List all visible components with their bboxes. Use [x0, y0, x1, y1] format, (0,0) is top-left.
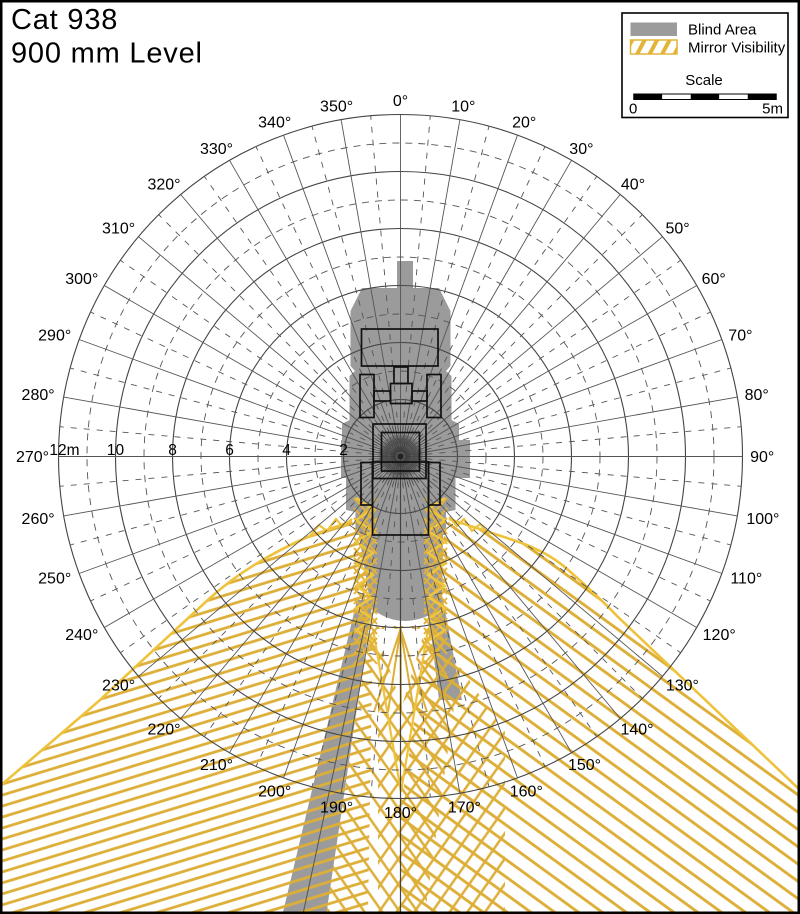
svg-text:60°: 60°	[702, 271, 726, 288]
svg-text:20°: 20°	[512, 115, 536, 132]
svg-text:8: 8	[168, 442, 177, 459]
svg-text:210°: 210°	[200, 757, 233, 774]
svg-text:900 mm Level: 900 mm Level	[11, 38, 203, 70]
svg-text:Scale: Scale	[685, 72, 723, 89]
svg-text:180°: 180°	[384, 805, 417, 822]
svg-text:10°: 10°	[451, 99, 475, 116]
svg-text:250°: 250°	[38, 571, 71, 588]
svg-text:150°: 150°	[568, 757, 601, 774]
svg-text:230°: 230°	[102, 678, 135, 695]
svg-text:260°: 260°	[22, 511, 55, 528]
svg-text:290°: 290°	[38, 327, 71, 344]
svg-text:220°: 220°	[147, 722, 180, 739]
svg-text:90°: 90°	[750, 449, 774, 466]
svg-text:100°: 100°	[746, 511, 779, 528]
svg-text:240°: 240°	[65, 627, 98, 644]
svg-text:Mirror Visibility: Mirror Visibility	[688, 40, 786, 57]
svg-text:40°: 40°	[621, 177, 645, 194]
svg-text:0: 0	[629, 101, 637, 118]
svg-text:120°: 120°	[703, 627, 736, 644]
svg-text:310°: 310°	[102, 220, 135, 237]
svg-text:270°: 270°	[16, 449, 49, 466]
svg-text:10: 10	[107, 442, 125, 459]
svg-text:330°: 330°	[200, 141, 233, 158]
svg-text:0°: 0°	[393, 93, 408, 110]
svg-text:70°: 70°	[728, 327, 752, 344]
svg-text:340°: 340°	[258, 115, 291, 132]
svg-text:Blind Area: Blind Area	[688, 22, 757, 39]
svg-text:Cat 938: Cat 938	[11, 4, 118, 36]
svg-text:350°: 350°	[320, 99, 353, 116]
svg-text:160°: 160°	[510, 783, 543, 800]
svg-text:140°: 140°	[620, 722, 653, 739]
svg-text:110°: 110°	[730, 571, 762, 588]
svg-text:320°: 320°	[147, 177, 180, 194]
svg-text:200°: 200°	[258, 783, 291, 800]
svg-text:4: 4	[282, 442, 291, 459]
svg-text:80°: 80°	[745, 387, 769, 404]
svg-text:30°: 30°	[569, 141, 593, 158]
svg-text:300°: 300°	[65, 271, 98, 288]
svg-text:50°: 50°	[665, 220, 689, 237]
svg-text:170°: 170°	[448, 799, 481, 816]
svg-text:6: 6	[225, 442, 234, 459]
svg-text:12m: 12m	[49, 442, 79, 459]
svg-text:130°: 130°	[666, 678, 699, 695]
svg-text:190°: 190°	[320, 799, 353, 816]
svg-text:5m: 5m	[762, 101, 783, 118]
svg-text:2: 2	[339, 442, 348, 459]
svg-text:280°: 280°	[22, 387, 55, 404]
